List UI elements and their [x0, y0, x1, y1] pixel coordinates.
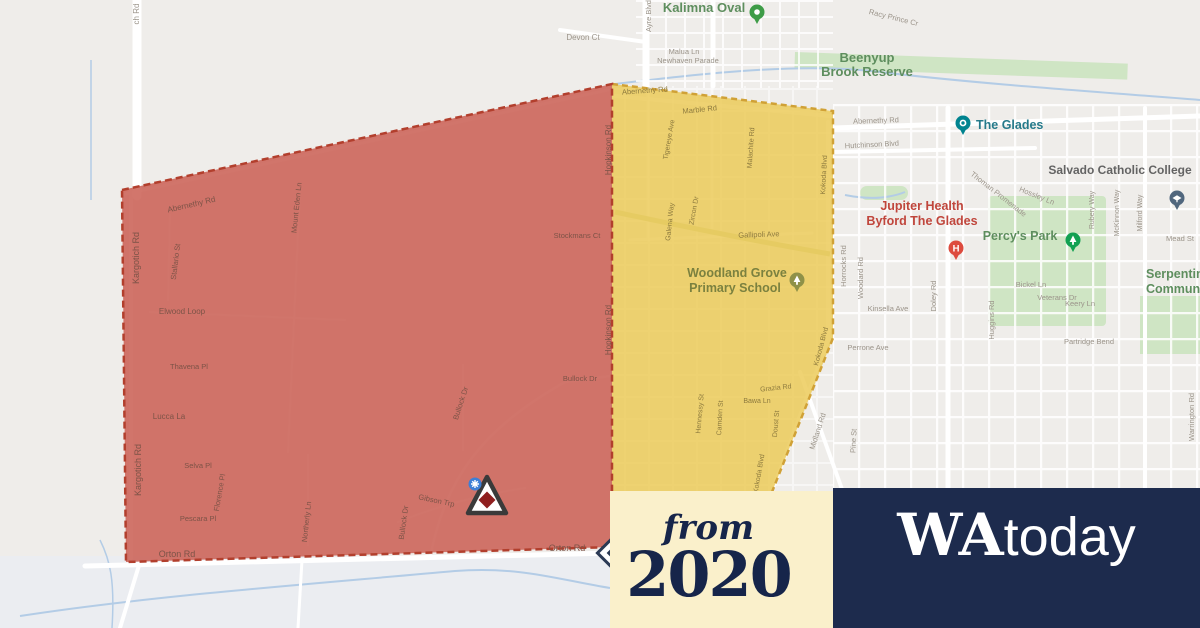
map-label: Partridge Bend [1064, 337, 1114, 346]
map-label: Ayre Blvd [644, 0, 653, 32]
map-label: Warrington Rd [1187, 393, 1196, 441]
kalimna-oval-pin-glyph [754, 9, 760, 15]
map-label: Serpentine [1146, 267, 1200, 281]
warning-map[interactable]: ch RdDevon CtMalua LnNewhaven ParadeRacy… [0, 0, 1200, 628]
map-label: Milford Way [1137, 194, 1144, 231]
map-label: Woodard Rd [856, 257, 865, 299]
map-label: Huggins Rd [987, 300, 996, 339]
map-label: Orton Rd [159, 549, 196, 559]
map-label: Hopkinson Rd [604, 305, 613, 355]
from-year-badge: from 2020 [610, 491, 833, 628]
map-label: ch Rd [132, 4, 141, 25]
warning-gear-badge [469, 478, 482, 491]
map-label: Malua Ln [669, 47, 700, 56]
map-label: Kinsella Ave [868, 304, 909, 313]
map-label: Stockmans Ct [554, 231, 602, 240]
map-label: Doley Rd [929, 281, 938, 312]
map-label: Mead St [1166, 234, 1195, 243]
map-label: Lucca La [153, 412, 186, 421]
watoday-today-label: today [1004, 510, 1136, 564]
map-label: Perrone Ave [847, 343, 888, 352]
map-label: The Glades [976, 118, 1043, 132]
map-label: Keery Ln [1065, 299, 1095, 308]
map-label: Horrocks Rd [839, 245, 848, 287]
map-label: Rubery Way [1089, 190, 1096, 229]
map-label: Abernethy Rd [853, 115, 899, 126]
watoday-wa-label: WA [897, 506, 1003, 564]
map-label: Jupiter Health [880, 199, 963, 213]
map-label: Bullock Dr [563, 374, 598, 383]
map-label: Byford The Glades [866, 214, 977, 228]
map-label: McKinnon Way [1114, 189, 1121, 236]
map-label: Beenyup [840, 50, 895, 65]
map-label: Devon Ct [566, 33, 600, 42]
map-label: Primary School [689, 281, 781, 295]
map-label: Newhaven Parade [657, 56, 719, 65]
map-label: Percy's Park [983, 229, 1058, 243]
year-label: 2020 [626, 544, 791, 606]
map-label: Kargotich Rd [131, 232, 141, 284]
watoday-masthead: WAtoday [833, 488, 1200, 628]
map-label: Kalimna Oval [663, 0, 745, 15]
map-label: Community [1146, 282, 1200, 296]
jupiter-health-pin-glyph: H [953, 244, 960, 255]
map-label: Gallipoli Ave [738, 229, 779, 239]
map-label: Selva Pl [184, 461, 212, 470]
map-label: Hopkinson Rd [604, 125, 613, 175]
map-label: Thavena Pl [170, 362, 208, 371]
map-label: Pine St [848, 428, 858, 454]
map-label: Bawa Ln [743, 398, 770, 405]
the-glades-pin-glyph [960, 120, 967, 127]
map-label: Brook Reserve [821, 64, 913, 79]
map-label: Woodland Grove [687, 266, 787, 280]
map-label: Kargotich Rd [133, 444, 143, 496]
map-label: Salvado Catholic College [1048, 163, 1192, 177]
map-label: Bickel Ln [1016, 280, 1046, 289]
map-label: Pescara Pl [180, 514, 217, 523]
map-label: Elwood Loop [159, 307, 206, 316]
map-label: Orton Rd [549, 543, 586, 553]
